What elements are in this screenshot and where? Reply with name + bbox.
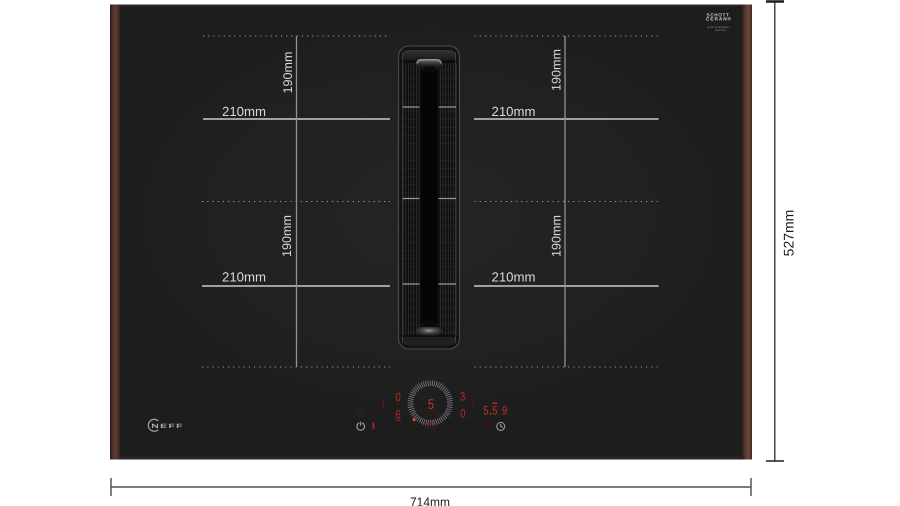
svg-text:8.: 8. bbox=[358, 408, 366, 420]
svg-text:210mm: 210mm bbox=[222, 270, 266, 285]
svg-text:9: 9 bbox=[502, 404, 507, 418]
svg-text:5: 5 bbox=[428, 397, 434, 413]
svg-text:6: 6 bbox=[396, 408, 401, 422]
svg-text:0: 0 bbox=[396, 390, 401, 404]
svg-text:MIRADUR: MIRADUR bbox=[715, 29, 726, 32]
svg-text:BOOST: BOOST bbox=[425, 425, 437, 429]
svg-text:527mm: 527mm bbox=[781, 210, 797, 257]
svg-text:0: 0 bbox=[460, 407, 465, 421]
svg-text:210mm: 210mm bbox=[222, 104, 266, 119]
svg-text:190mm: 190mm bbox=[550, 49, 564, 91]
svg-text:5: 5 bbox=[492, 404, 497, 418]
svg-text:210mm: 210mm bbox=[492, 270, 536, 285]
svg-text:714mm: 714mm bbox=[410, 495, 450, 506]
svg-text:190mm: 190mm bbox=[281, 52, 295, 94]
svg-text:NEFF: NEFF bbox=[151, 423, 184, 430]
svg-text:190mm: 190mm bbox=[280, 215, 294, 257]
svg-text:210mm: 210mm bbox=[492, 104, 536, 119]
svg-text:190mm: 190mm bbox=[550, 215, 564, 257]
svg-text:5: 5 bbox=[483, 404, 488, 418]
svg-text:CERAN®: CERAN® bbox=[706, 17, 732, 23]
